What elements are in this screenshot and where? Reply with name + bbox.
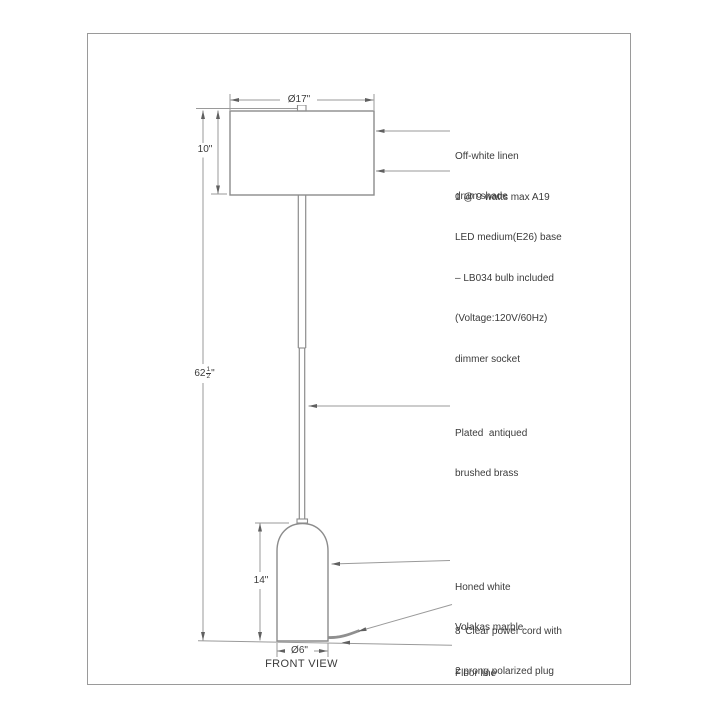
shade-diameter-label: Ø17" [281, 94, 317, 105]
base-height-label: 14" [251, 575, 271, 586]
annotation-line: 1 @ 9 watts max A19 [455, 191, 562, 205]
drum-shade-outline [230, 111, 374, 195]
total-height-whole: 62 [194, 368, 205, 379]
shade-height-label: 10" [195, 144, 215, 155]
annotation-line: Off-white linen [455, 150, 519, 164]
base-diameter-label: Ø6" [285, 645, 314, 656]
pole-collar-outline [297, 519, 308, 523]
lamp-outline [230, 105, 374, 641]
annotation-line: Floor line [455, 667, 496, 681]
leader-lines [309, 131, 453, 632]
annotation-line: dimmer socket [455, 353, 562, 367]
arrowheads [201, 98, 385, 653]
annotation-line: brushed brass [455, 467, 527, 481]
view-title: FRONT VIEW [248, 658, 355, 670]
annotation-line: 8' Clear power cord with [455, 625, 562, 639]
technical-drawing [0, 0, 720, 720]
leader-base [332, 561, 451, 565]
power-cord [329, 631, 360, 638]
annotation-line: LED medium(E26) base [455, 231, 562, 245]
total-height-fraction: 12 [206, 367, 211, 380]
fraction-denominator: 2 [206, 374, 210, 380]
annotation-socket: 1 @ 9 watts max A19 LED medium(E26) base… [455, 164, 562, 394]
marble-base-outline [277, 524, 328, 642]
finial-outline [298, 105, 307, 111]
annotation-line: – LB034 bulb included [455, 272, 562, 286]
annotation-floor: Floor line [455, 640, 496, 708]
annotation-line: (Voltage:120V/60Hz) [455, 312, 562, 326]
annotation-pole: Plated antiqued brushed brass [455, 400, 527, 508]
annotation-line: Honed white [455, 581, 523, 595]
annotation-line: Plated antiqued [455, 427, 527, 441]
leader-cord [358, 605, 453, 632]
total-height-label: 6212" [190, 365, 219, 381]
dimension-lines [196, 94, 452, 657]
drawing-canvas: Ø17" 10" 6212" 14" Ø6" Off-white linen d… [0, 0, 720, 720]
total-height-unit: " [211, 368, 215, 379]
